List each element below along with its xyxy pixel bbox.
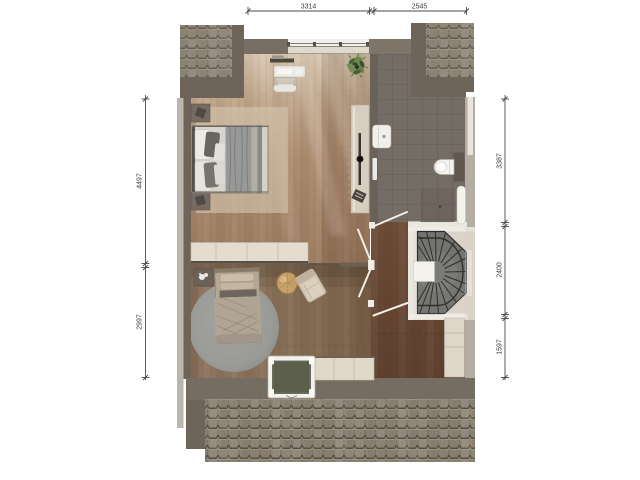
svg-text:2545: 2545: [412, 4, 428, 11]
svg-text:2997: 2997: [137, 314, 144, 330]
svg-text:3314: 3314: [301, 4, 317, 11]
svg-text:1597: 1597: [497, 339, 504, 355]
svg-text:3387: 3387: [497, 153, 504, 169]
svg-text:2400: 2400: [497, 262, 504, 278]
svg-text:4497: 4497: [137, 173, 144, 189]
